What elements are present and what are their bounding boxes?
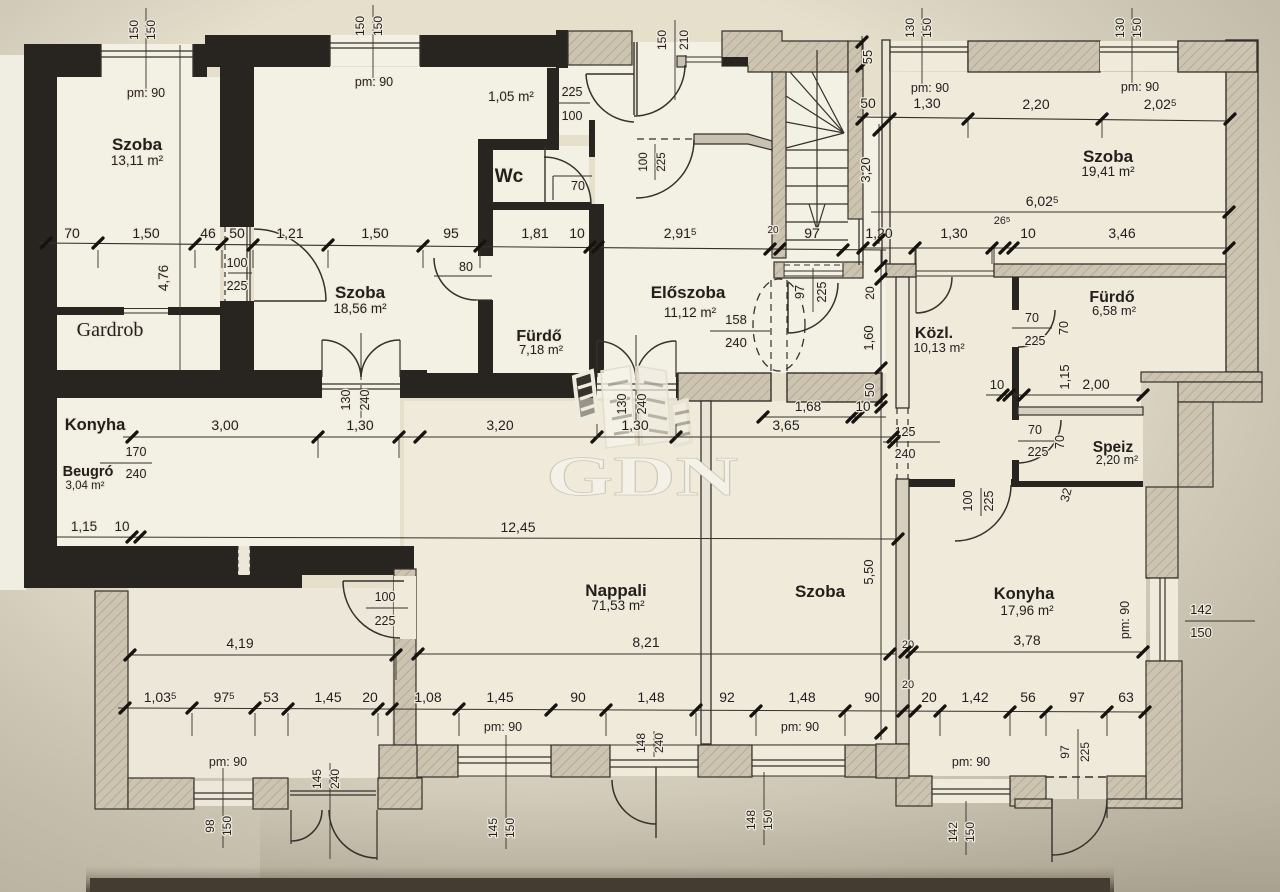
- svg-text:pm: 90: pm: 90: [911, 81, 949, 95]
- svg-text:3,78: 3,78: [1013, 632, 1040, 648]
- svg-text:10: 10: [990, 377, 1004, 392]
- svg-text:240: 240: [126, 467, 147, 481]
- svg-text:10: 10: [1020, 225, 1036, 241]
- svg-text:148: 148: [634, 733, 648, 753]
- svg-text:240: 240: [895, 447, 916, 461]
- svg-text:10: 10: [855, 399, 870, 414]
- svg-text:145: 145: [486, 818, 500, 838]
- svg-text:225: 225: [1028, 445, 1049, 459]
- svg-text:10,13 m²: 10,13 m²: [913, 340, 965, 355]
- svg-text:70: 70: [1028, 423, 1042, 437]
- svg-text:3,00: 3,00: [211, 417, 238, 433]
- svg-text:1,30: 1,30: [346, 417, 373, 433]
- svg-text:100: 100: [227, 256, 248, 270]
- svg-text:GDN: GDN: [546, 446, 738, 508]
- svg-text:17,96 m²: 17,96 m²: [1000, 603, 1054, 618]
- svg-text:Szoba: Szoba: [795, 582, 846, 601]
- svg-text:Beugró: Beugró: [63, 464, 114, 480]
- svg-text:1,08: 1,08: [414, 689, 441, 705]
- svg-text:1,81: 1,81: [521, 225, 548, 241]
- svg-text:225: 225: [656, 152, 668, 171]
- svg-text:95: 95: [443, 225, 459, 241]
- svg-text:Gardrob: Gardrob: [77, 319, 144, 341]
- svg-text:148: 148: [744, 810, 758, 830]
- svg-text:pm: 90: pm: 90: [781, 720, 819, 734]
- svg-text:1,60: 1,60: [861, 325, 876, 350]
- svg-text:1,48: 1,48: [788, 689, 815, 705]
- svg-text:1,68: 1,68: [795, 399, 821, 414]
- svg-text:1,45: 1,45: [314, 689, 341, 705]
- svg-text:50: 50: [862, 383, 877, 397]
- svg-text:Wc: Wc: [495, 166, 524, 187]
- svg-text:225: 225: [375, 614, 396, 628]
- svg-text:11,12 m²: 11,12 m²: [664, 305, 717, 320]
- svg-text:1,30: 1,30: [621, 417, 648, 433]
- svg-text:63: 63: [1118, 689, 1134, 705]
- svg-text:2,20 m²: 2,20 m²: [1096, 453, 1138, 467]
- svg-text:145: 145: [310, 769, 324, 789]
- svg-text:225: 225: [815, 282, 829, 303]
- svg-text:pm: 90: pm: 90: [209, 755, 247, 769]
- svg-text:97: 97: [1058, 745, 1072, 759]
- svg-text:13,11 m²: 13,11 m²: [111, 153, 164, 168]
- svg-text:pm: 90: pm: 90: [1118, 601, 1132, 639]
- svg-text:170: 170: [126, 445, 147, 459]
- svg-text:225: 225: [982, 491, 996, 512]
- svg-text:97: 97: [1069, 689, 1085, 705]
- svg-text:Konyha: Konyha: [994, 585, 1055, 603]
- svg-text:Szoba: Szoba: [335, 283, 386, 302]
- svg-text:150: 150: [503, 818, 517, 838]
- svg-text:Konyha: Konyha: [65, 416, 126, 434]
- svg-text:225: 225: [227, 279, 248, 293]
- svg-text:20: 20: [902, 679, 914, 691]
- svg-text:pm: 90: pm: 90: [355, 75, 393, 89]
- svg-text:158: 158: [725, 312, 747, 327]
- svg-text:90: 90: [864, 689, 880, 705]
- svg-text:1,50: 1,50: [132, 225, 159, 241]
- svg-text:pm: 90: pm: 90: [127, 86, 165, 100]
- svg-text:20: 20: [767, 225, 779, 236]
- svg-text:3,20: 3,20: [486, 417, 513, 433]
- svg-text:pm: 90: pm: 90: [484, 720, 522, 734]
- svg-text:142: 142: [1190, 602, 1212, 617]
- svg-text:1,45: 1,45: [486, 689, 513, 705]
- svg-text:240: 240: [635, 394, 649, 415]
- svg-text:71,53 m²: 71,53 m²: [591, 598, 645, 613]
- svg-text:97: 97: [804, 225, 820, 241]
- svg-text:pm: 90: pm: 90: [952, 755, 990, 769]
- svg-text:19,41 m²: 19,41 m²: [1081, 164, 1135, 179]
- svg-text:225: 225: [1078, 742, 1092, 762]
- svg-text:142: 142: [946, 822, 960, 842]
- svg-text:1,50: 1,50: [361, 225, 388, 241]
- svg-text:130: 130: [903, 18, 917, 38]
- svg-text:1,05 m²: 1,05 m²: [488, 89, 534, 104]
- svg-text:100: 100: [375, 590, 396, 604]
- svg-text:55: 55: [860, 50, 875, 64]
- svg-text:70: 70: [1057, 321, 1071, 335]
- svg-text:100: 100: [961, 491, 975, 512]
- svg-text:2,00: 2,00: [1082, 376, 1109, 392]
- svg-text:150: 150: [920, 18, 934, 38]
- svg-text:150: 150: [371, 16, 385, 36]
- svg-text:3,04 m²: 3,04 m²: [66, 480, 105, 492]
- svg-text:8,21: 8,21: [632, 634, 659, 650]
- svg-text:92: 92: [719, 689, 735, 705]
- svg-text:100: 100: [562, 109, 583, 123]
- svg-text:10: 10: [569, 225, 585, 241]
- svg-text:97: 97: [793, 285, 807, 299]
- svg-text:240: 240: [652, 733, 666, 753]
- svg-text:225: 225: [562, 85, 583, 99]
- svg-text:53: 53: [263, 689, 279, 705]
- svg-text:80: 80: [459, 260, 473, 274]
- svg-text:1,30: 1,30: [940, 225, 967, 241]
- svg-text:130: 130: [1113, 18, 1127, 38]
- svg-text:1,42: 1,42: [961, 689, 988, 705]
- svg-text:1,48: 1,48: [637, 689, 664, 705]
- svg-text:150: 150: [220, 816, 234, 836]
- svg-text:12,45: 12,45: [500, 519, 535, 535]
- svg-text:70: 70: [1053, 435, 1067, 449]
- svg-text:210: 210: [677, 30, 691, 50]
- svg-text:240: 240: [328, 769, 342, 789]
- svg-text:3,20: 3,20: [858, 157, 873, 182]
- svg-text:50: 50: [229, 225, 245, 241]
- svg-text:70: 70: [64, 225, 80, 241]
- svg-text:3,65: 3,65: [772, 417, 799, 433]
- svg-text:1,21: 1,21: [276, 225, 303, 241]
- svg-text:90: 90: [570, 689, 586, 705]
- svg-text:150: 150: [655, 30, 669, 50]
- svg-text:Szoba: Szoba: [112, 135, 163, 154]
- svg-text:225: 225: [1025, 334, 1046, 348]
- svg-text:3,46: 3,46: [1108, 225, 1135, 241]
- svg-text:150: 150: [1130, 18, 1144, 38]
- svg-text:2,20: 2,20: [1022, 96, 1049, 112]
- svg-text:240: 240: [725, 335, 747, 350]
- svg-text:150: 150: [963, 822, 977, 842]
- svg-text:1,30: 1,30: [913, 95, 940, 111]
- svg-text:50: 50: [860, 95, 876, 111]
- svg-text:130: 130: [339, 390, 353, 411]
- svg-text:4,76: 4,76: [156, 265, 171, 291]
- svg-text:5,50: 5,50: [861, 559, 876, 584]
- svg-text:46: 46: [200, 225, 216, 241]
- svg-text:20: 20: [863, 286, 877, 300]
- svg-text:4,19: 4,19: [226, 635, 253, 651]
- svg-text:6,58 m²: 6,58 m²: [1092, 303, 1137, 318]
- svg-text:Előszoba: Előszoba: [651, 283, 726, 302]
- svg-text:1,15: 1,15: [1057, 364, 1072, 389]
- svg-text:20: 20: [362, 689, 378, 705]
- svg-text:150: 150: [127, 20, 141, 40]
- svg-text:1,15: 1,15: [71, 519, 97, 534]
- svg-text:130: 130: [615, 394, 629, 415]
- svg-text:98: 98: [203, 819, 217, 833]
- svg-text:18,56 m²: 18,56 m²: [333, 301, 387, 316]
- svg-text:150: 150: [144, 20, 158, 40]
- svg-text:150: 150: [1190, 625, 1212, 640]
- svg-text:7,18 m²: 7,18 m²: [519, 342, 564, 357]
- svg-text:20: 20: [921, 689, 937, 705]
- svg-text:150: 150: [353, 16, 367, 36]
- svg-text:56: 56: [1020, 689, 1036, 705]
- svg-text:240: 240: [358, 390, 372, 411]
- svg-text:150: 150: [761, 810, 775, 830]
- svg-text:70: 70: [1025, 311, 1039, 325]
- svg-text:100: 100: [638, 152, 650, 171]
- svg-text:70: 70: [571, 179, 585, 193]
- svg-text:10: 10: [114, 519, 129, 534]
- svg-text:pm: 90: pm: 90: [1121, 80, 1159, 94]
